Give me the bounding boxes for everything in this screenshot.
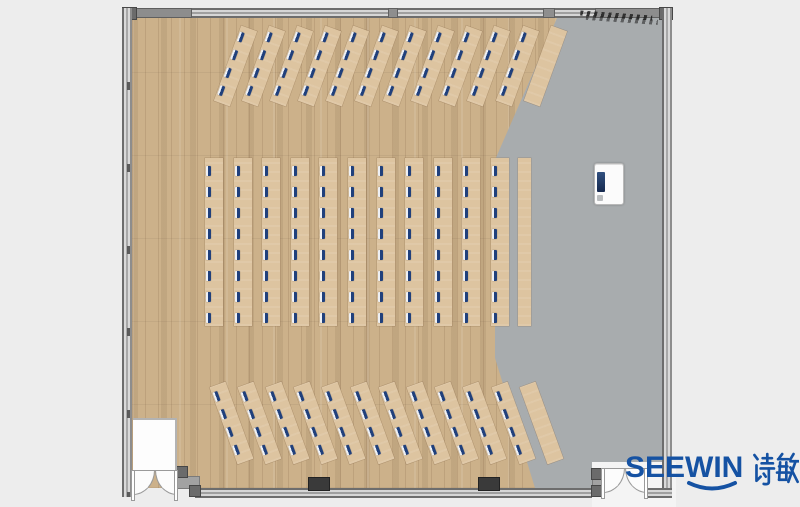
monitor-icon (449, 67, 457, 78)
desk-column (434, 158, 452, 326)
monitor-icon (378, 292, 383, 302)
desk-column (205, 158, 223, 326)
monitor-icon (268, 391, 276, 402)
monitor-icon (505, 67, 513, 78)
monitor-icon (406, 292, 411, 302)
monitor-icon (492, 187, 497, 197)
monitor-icon (292, 313, 297, 323)
monitor-icon (218, 409, 226, 420)
monitor-icon (236, 31, 244, 42)
monitor-icon (378, 313, 383, 323)
monitor-icon (492, 271, 497, 281)
monitor-icon (492, 313, 497, 323)
monitor-icon (386, 85, 394, 96)
monitor-icon (457, 445, 465, 456)
monitor-icon (235, 292, 240, 302)
monitor-icon (230, 49, 238, 60)
monitor-icon (263, 313, 268, 323)
monitor-icon (463, 229, 468, 239)
monitor-icon (349, 313, 354, 323)
monitor-icon (235, 208, 240, 218)
monitor-icon (264, 31, 272, 42)
monitor-icon (435, 187, 440, 197)
desk-column (234, 158, 252, 326)
monitor-icon (435, 166, 440, 176)
monitor-icon (405, 31, 413, 42)
monitor-icon (483, 49, 491, 60)
monitor-icon (292, 250, 297, 260)
monitor-icon (406, 250, 411, 260)
monitor-icon (344, 445, 352, 456)
monitor-icon (378, 229, 383, 239)
monitor-icon (500, 409, 508, 420)
monitor-icon (388, 409, 396, 420)
monitor-icon (258, 49, 266, 60)
monitor-icon (316, 445, 324, 456)
monitor-icon (492, 250, 497, 260)
monitor-icon (358, 85, 366, 96)
monitor-icon (485, 445, 493, 456)
monitor-icon (342, 49, 350, 60)
monitor-icon (247, 409, 255, 420)
monitor-icon (217, 85, 225, 96)
monitor-icon (292, 166, 297, 176)
monitor-icon (435, 208, 440, 218)
monitor-icon (435, 271, 440, 281)
monitor-icon (394, 427, 402, 438)
monitor-icon (297, 391, 305, 402)
monitor-icon (406, 271, 411, 281)
monitor-icon (477, 67, 485, 78)
podium-screen-icon (597, 172, 605, 192)
monitor-icon (435, 313, 440, 323)
desk-column (377, 158, 395, 326)
floor-plan-canvas: SEEWIN (0, 0, 800, 507)
monitor-icon (406, 208, 411, 218)
desk-column (262, 158, 280, 326)
monitor-icon (320, 250, 325, 260)
monitor-icon (253, 427, 261, 438)
monitor-icon (349, 229, 354, 239)
monitor-icon (479, 427, 487, 438)
monitor-icon (321, 31, 329, 42)
monitor-icon (372, 445, 380, 456)
logo-smile-swoosh (683, 480, 741, 494)
monitor-icon (206, 166, 211, 176)
monitor-icon (263, 271, 268, 281)
monitor-icon (235, 166, 240, 176)
monitor-icon (349, 187, 354, 197)
monitor-icon (292, 187, 297, 197)
desk-column (491, 158, 509, 326)
monitor-icon (463, 313, 468, 323)
monitor-icon (378, 271, 383, 281)
monitor-icon (303, 409, 311, 420)
desk-column (319, 158, 337, 326)
monitor-icon (406, 166, 411, 176)
monitor-icon (206, 187, 211, 197)
monitor-icon (273, 85, 281, 96)
monitor-icon (235, 313, 240, 323)
monitor-icon (434, 31, 442, 42)
monitor-icon (275, 409, 283, 420)
monitor-icon (444, 409, 452, 420)
monitor-icon (392, 67, 400, 78)
monitor-icon (235, 229, 240, 239)
monitor-icon (462, 31, 470, 42)
podium-slot (597, 195, 603, 201)
monitor-icon (364, 67, 372, 78)
monitor-icon (320, 313, 325, 323)
monitor-icon (507, 427, 515, 438)
monitor-icon (472, 409, 480, 420)
side-table (518, 158, 531, 326)
monitor-icon (399, 49, 407, 60)
monitor-icon (492, 166, 497, 176)
monitor-icon (206, 250, 211, 260)
monitor-icon (292, 292, 297, 302)
monitor-icon (235, 250, 240, 260)
monitor-icon (416, 409, 424, 420)
monitor-icon (263, 229, 268, 239)
desks-layer (0, 0, 800, 507)
monitor-icon (492, 229, 497, 239)
monitor-icon (435, 229, 440, 239)
monitor-icon (518, 31, 526, 42)
monitor-icon (336, 67, 344, 78)
monitor-icon (320, 229, 325, 239)
monitor-icon (235, 271, 240, 281)
monitor-icon (263, 187, 268, 197)
monitor-icon (490, 31, 498, 42)
monitor-icon (378, 208, 383, 218)
monitor-icon (206, 271, 211, 281)
monitor-icon (310, 427, 318, 438)
monitor-icon (463, 187, 468, 197)
monitor-icon (421, 67, 429, 78)
monitor-icon (206, 292, 211, 302)
monitor-icon (206, 229, 211, 239)
monitor-icon (263, 208, 268, 218)
monitor-icon (206, 313, 211, 323)
monitor-icon (470, 85, 478, 96)
monitor-icon (378, 250, 383, 260)
monitor-icon (414, 85, 422, 96)
monitor-icon (463, 250, 468, 260)
monitor-icon (349, 31, 357, 42)
monitor-icon (406, 187, 411, 197)
monitor-icon (371, 49, 379, 60)
monitor-icon (320, 187, 325, 197)
brand-logo: SEEWIN (625, 449, 797, 495)
monitor-icon (377, 31, 385, 42)
monitor-icon (292, 229, 297, 239)
monitor-icon (293, 31, 301, 42)
monitor-icon (308, 67, 316, 78)
desk-column (462, 158, 480, 326)
monitor-icon (438, 391, 446, 402)
monitor-icon (409, 391, 417, 402)
monitor-icon (288, 445, 296, 456)
monitor-icon (406, 313, 411, 323)
monitor-icon (301, 85, 309, 96)
monitor-icon (206, 208, 211, 218)
monitor-icon (366, 427, 374, 438)
monitor-icon (349, 292, 354, 302)
monitor-icon (442, 85, 450, 96)
monitor-icon (349, 208, 354, 218)
monitor-icon (280, 67, 288, 78)
monitor-icon (223, 67, 231, 78)
monitor-icon (378, 187, 383, 197)
monitor-icon (455, 49, 463, 60)
monitor-icon (292, 208, 297, 218)
brand-chinese-characters (751, 452, 799, 488)
monitor-icon (235, 187, 240, 197)
monitor-icon (349, 271, 354, 281)
monitor-icon (225, 427, 233, 438)
monitor-icon (251, 67, 259, 78)
desk-column (405, 158, 423, 326)
desk-column (348, 158, 366, 326)
monitor-icon (314, 49, 322, 60)
monitor-icon (429, 445, 437, 456)
monitor-icon (263, 250, 268, 260)
monitor-icon (492, 208, 497, 218)
monitor-icon (320, 208, 325, 218)
monitor-icon (349, 166, 354, 176)
monitor-icon (353, 391, 361, 402)
monitor-icon (463, 292, 468, 302)
monitor-icon (359, 409, 367, 420)
monitor-icon (463, 166, 468, 176)
monitor-icon (381, 391, 389, 402)
monitor-icon (463, 208, 468, 218)
monitor-icon (263, 166, 268, 176)
monitor-icon (320, 292, 325, 302)
monitor-icon (292, 271, 297, 281)
monitor-icon (435, 292, 440, 302)
monitor-icon (451, 427, 459, 438)
monitor-icon (463, 271, 468, 281)
monitor-icon (401, 445, 409, 456)
monitor-icon (492, 292, 497, 302)
monitor-icon (349, 250, 354, 260)
desk-column (291, 158, 309, 326)
monitor-icon (422, 427, 430, 438)
monitor-icon (494, 391, 502, 402)
monitor-icon (320, 271, 325, 281)
monitor-icon (286, 49, 294, 60)
monitor-icon (331, 409, 339, 420)
monitor-icon (325, 391, 333, 402)
monitor-icon (512, 49, 520, 60)
monitor-icon (329, 85, 337, 96)
monitor-icon (427, 49, 435, 60)
monitor-icon (263, 292, 268, 302)
monitor-icon (281, 427, 289, 438)
presenter-station (594, 163, 624, 205)
monitor-icon (260, 445, 268, 456)
monitor-icon (240, 391, 248, 402)
monitor-icon (245, 85, 253, 96)
monitor-icon (466, 391, 474, 402)
monitor-icon (338, 427, 346, 438)
monitor-icon (378, 166, 383, 176)
monitor-icon (231, 445, 239, 456)
monitor-icon (406, 229, 411, 239)
monitor-icon (320, 166, 325, 176)
monitor-icon (212, 391, 220, 402)
monitor-icon (513, 445, 521, 456)
monitor-icon (499, 85, 507, 96)
monitor-icon (435, 250, 440, 260)
